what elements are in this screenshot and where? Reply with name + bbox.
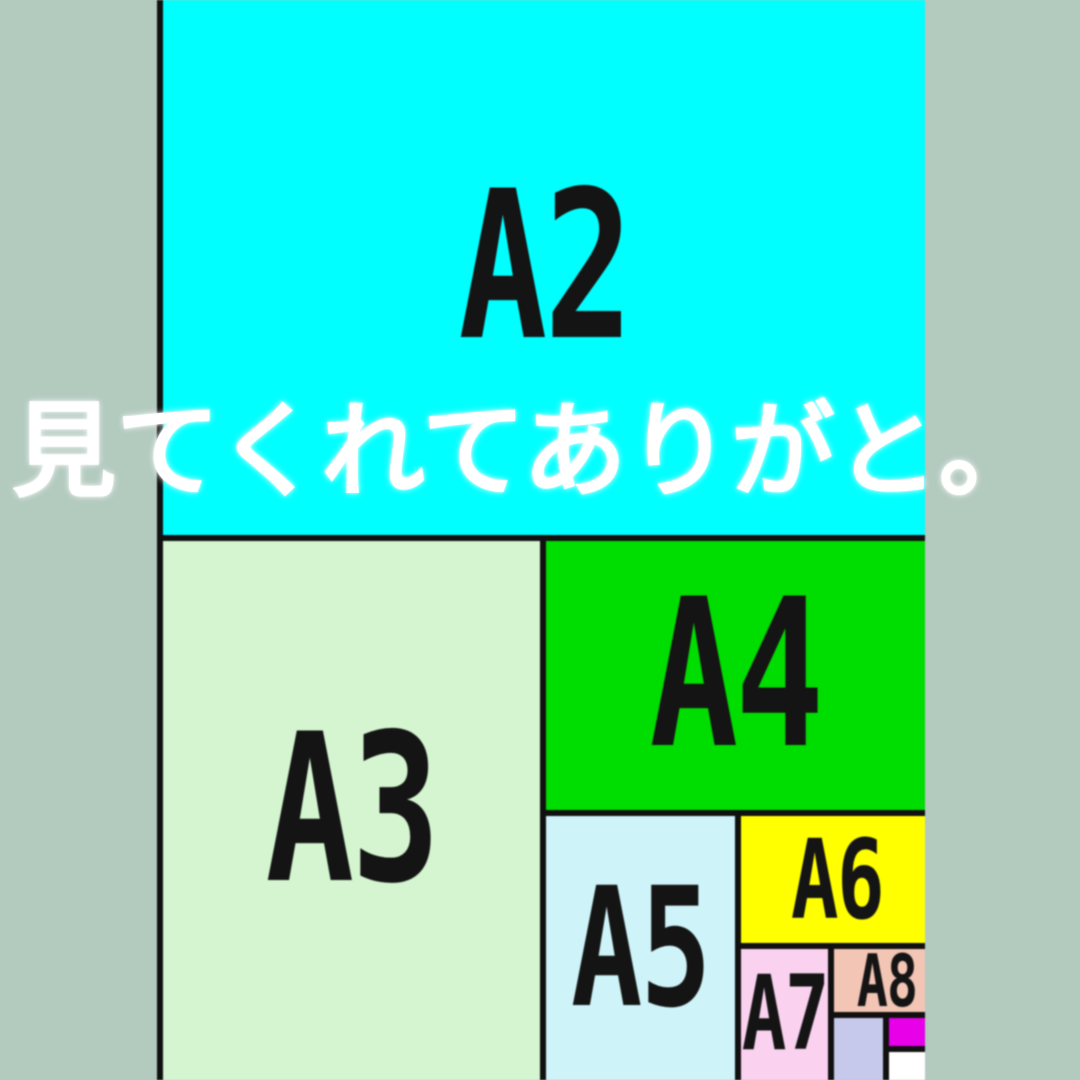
paper-box-a10	[889, 1018, 925, 1046]
paper-label-a7: A7	[741, 963, 827, 1066]
paper-label-a8: A8	[856, 949, 916, 1012]
paper-box-a3: A3	[163, 541, 540, 1080]
post-canvas: A2 A3 A4 A5 A6 A7 A8 見てくれてありがと。	[0, 0, 1080, 1080]
paper-box-a9	[834, 1018, 883, 1080]
paper-label-a6: A6	[791, 825, 883, 935]
caption-overlay: 見てくれてありがと。	[12, 394, 1043, 508]
paper-box-a7: A7	[741, 949, 828, 1080]
paper-size-diagram: A2 A3 A4 A5 A6 A7 A8	[157, 0, 925, 1080]
paper-label-a3: A3	[266, 708, 438, 913]
paper-label-a2: A2	[458, 165, 630, 370]
paper-box-a8: A8	[834, 949, 925, 1012]
paper-label-a5: A5	[571, 866, 709, 1031]
paper-box-a11	[889, 1052, 925, 1080]
paper-box-a4: A4	[546, 541, 925, 810]
paper-box-a6: A6	[741, 816, 925, 943]
paper-box-a5: A5	[546, 816, 735, 1080]
paper-label-a4: A4	[650, 573, 822, 778]
